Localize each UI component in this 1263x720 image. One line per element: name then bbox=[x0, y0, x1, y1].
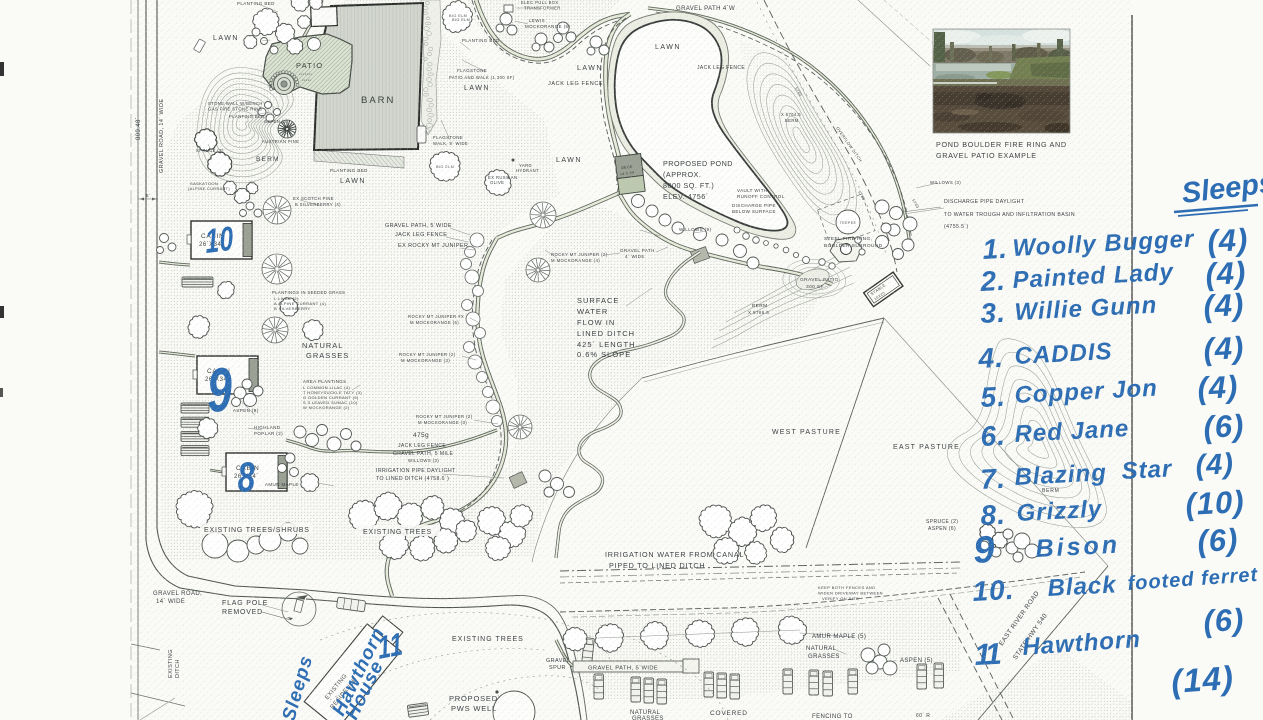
svg-text:(10): (10) bbox=[1185, 484, 1246, 522]
svg-text:(6): (6) bbox=[1203, 408, 1246, 445]
svg-text:(6): (6) bbox=[1203, 602, 1246, 639]
svg-text:(14): (14) bbox=[1170, 659, 1235, 700]
svg-text:(4): (4) bbox=[1197, 369, 1240, 406]
svg-text:(4): (4) bbox=[1195, 448, 1235, 482]
svg-text:(4): (4) bbox=[1207, 222, 1250, 259]
svg-text:(4): (4) bbox=[1203, 287, 1246, 324]
svg-text:(4): (4) bbox=[1203, 330, 1246, 367]
svg-text:(6): (6) bbox=[1197, 522, 1240, 559]
